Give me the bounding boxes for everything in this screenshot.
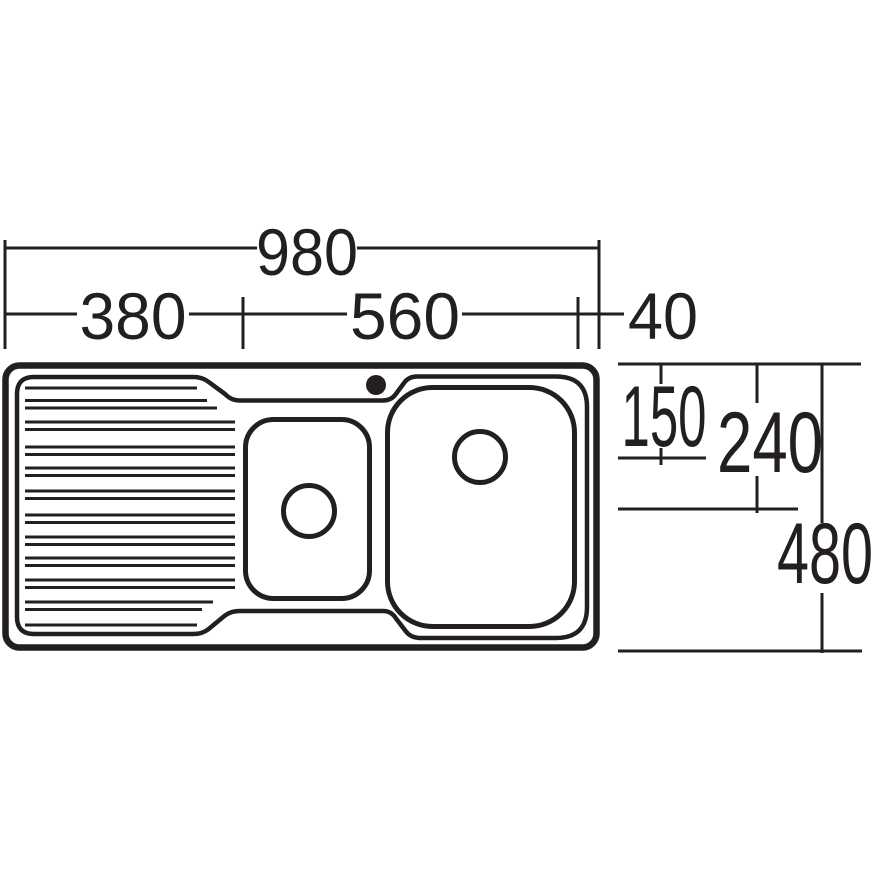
technical-drawing-canvas: 980 380 560 40 150 240 4	[0, 0, 880, 880]
dimension-sections-row: 380 560 40	[5, 279, 698, 353]
small-bowl-drain	[284, 486, 335, 537]
small-bowl	[246, 420, 370, 599]
large-bowl	[388, 388, 575, 627]
sink-drawing	[6, 366, 597, 648]
bowl-section-width-label: 560	[350, 279, 460, 353]
large-bowl-drain-offset-label: 150	[622, 369, 707, 465]
tap-hole	[366, 375, 386, 395]
drainer-width-label: 380	[80, 279, 187, 353]
small-bowl-drain-offset-label: 240	[717, 395, 823, 491]
dimension-depth-group: 150 240 480	[618, 364, 873, 653]
right-edge-offset-label: 40	[628, 279, 698, 353]
sink-diagram: 980 380 560 40 150 240 4	[0, 0, 880, 880]
large-bowl-drain	[455, 432, 506, 483]
drainboard-ribs	[25, 388, 235, 625]
overall-depth-label: 480	[777, 506, 873, 602]
overall-width-label: 980	[256, 215, 358, 289]
